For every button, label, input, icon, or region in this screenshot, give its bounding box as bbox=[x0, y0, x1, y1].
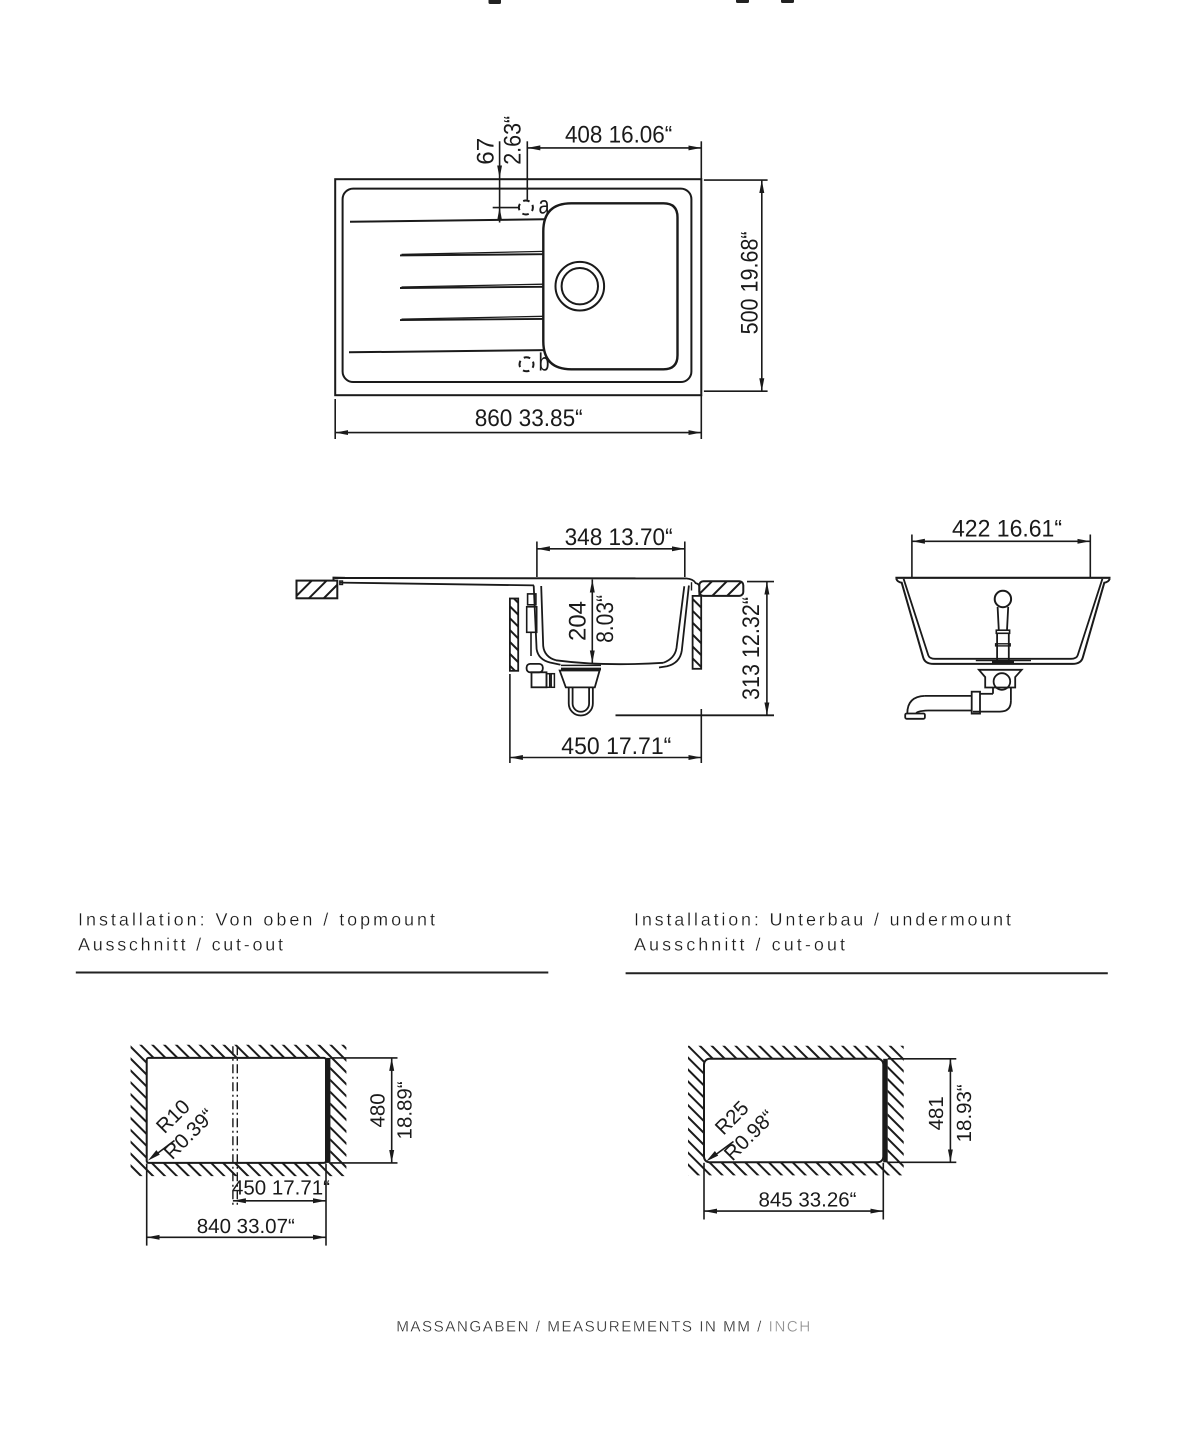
svg-text:Installation: Unterbau / under: Installation: Unterbau / undermount bbox=[634, 910, 1011, 930]
svg-text:8.03“: 8.03“ bbox=[592, 595, 619, 643]
svg-text:313 12.32“: 313 12.32“ bbox=[738, 597, 765, 700]
svg-text:67: 67 bbox=[473, 138, 500, 165]
svg-text:18.93“: 18.93“ bbox=[953, 1084, 976, 1142]
svg-text:840 33.07“: 840 33.07“ bbox=[197, 1215, 295, 1238]
svg-text:Installation: Von oben / topmo: Installation: Von oben / topmount bbox=[78, 910, 435, 930]
svg-text:450 17.71“: 450 17.71“ bbox=[561, 733, 671, 760]
svg-text:Ausschnitt / cut-out: Ausschnitt / cut-out bbox=[634, 935, 845, 955]
svg-text:204: 204 bbox=[565, 601, 592, 641]
svg-text:a: a bbox=[539, 192, 550, 220]
svg-text:481: 481 bbox=[925, 1096, 948, 1130]
svg-text:2.63“: 2.63“ bbox=[499, 116, 526, 165]
svg-text:845 33.26“: 845 33.26“ bbox=[758, 1189, 856, 1212]
svg-text:422 16.61“: 422 16.61“ bbox=[952, 515, 1062, 542]
svg-text:860 33.85“: 860 33.85“ bbox=[475, 405, 583, 432]
svg-text:408 16.06“: 408 16.06“ bbox=[565, 121, 672, 148]
svg-text:480: 480 bbox=[367, 1093, 390, 1127]
svg-text:348 13.70“: 348 13.70“ bbox=[565, 524, 673, 551]
svg-text:18.89“: 18.89“ bbox=[394, 1081, 417, 1139]
svg-text:b: b bbox=[539, 349, 550, 377]
svg-text:Ausschnitt / cut-out: Ausschnitt / cut-out bbox=[78, 935, 283, 955]
svg-text:MASSANGABEN / MEASUREMENTS IN: MASSANGABEN / MEASUREMENTS IN MM / INCH bbox=[396, 1319, 811, 1336]
svg-text:500 19.68“: 500 19.68“ bbox=[737, 231, 764, 334]
svg-text:450 17.71“: 450 17.71“ bbox=[232, 1176, 330, 1199]
